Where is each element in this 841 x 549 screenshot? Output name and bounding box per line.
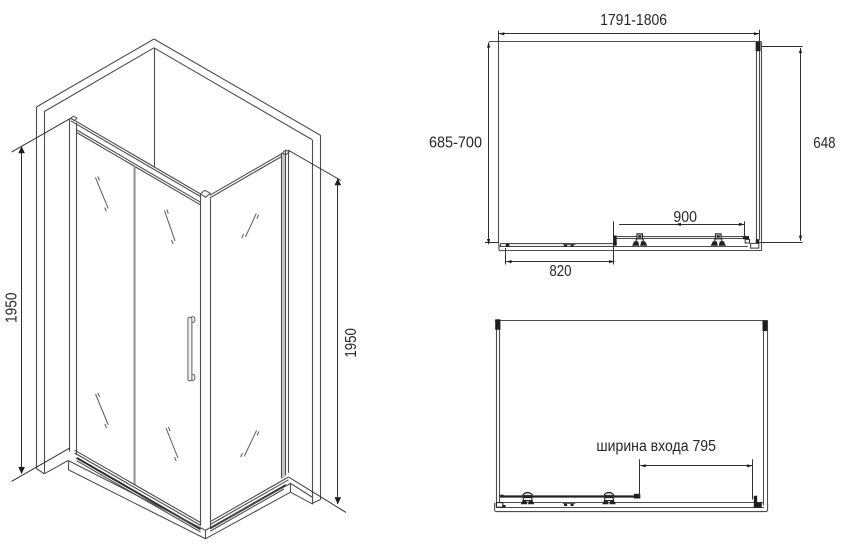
svg-text:900: 900 [673,209,697,226]
svg-text:ширина входа 795: ширина входа 795 [596,438,716,455]
svg-text:685-700: 685-700 [429,134,482,151]
svg-text:820: 820 [549,263,572,280]
svg-text:1950: 1950 [343,328,360,358]
svg-text:648: 648 [813,135,835,152]
svg-text:1950: 1950 [3,292,20,323]
svg-text:1791-1806: 1791-1806 [600,12,667,29]
